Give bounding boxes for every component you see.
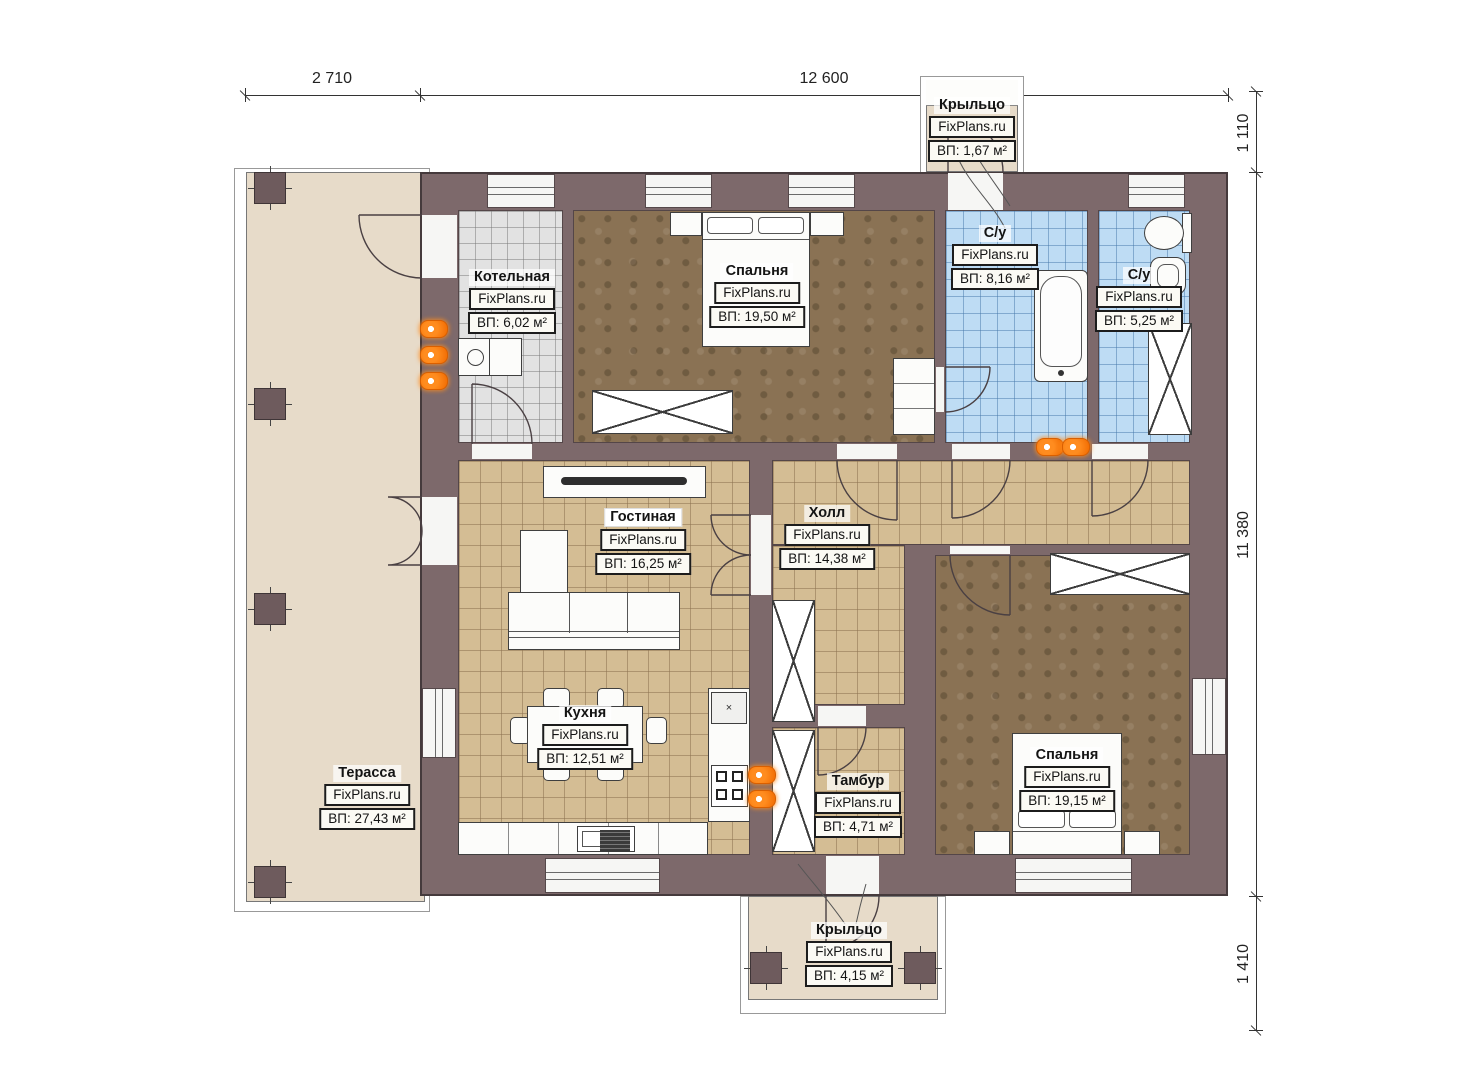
- area-box: ВП: 27,43 м²: [319, 808, 415, 830]
- terrace-column: [248, 166, 292, 210]
- nightstand: [810, 212, 844, 236]
- watermark-box: FixPlans.ru: [1096, 286, 1182, 308]
- burner: [716, 789, 727, 800]
- stove: [711, 765, 748, 807]
- drawer-line: [894, 383, 934, 384]
- toilet: [1144, 216, 1184, 250]
- watermark-box: FixPlans.ru: [952, 244, 1038, 266]
- watermark-box: FixPlans.ru: [469, 288, 555, 310]
- dim-top-house: 12 600: [744, 70, 904, 88]
- burner: [732, 771, 743, 782]
- door-opening-boiler: [472, 444, 532, 459]
- door-opening-terrace-living: [422, 497, 457, 565]
- window: [1128, 174, 1185, 208]
- room-label-porch-bottom: Крыльцо FixPlans.ru ВП: 4,15 м²: [805, 921, 893, 987]
- porch-column: [744, 946, 788, 990]
- area-box: ВП: 14,38 м²: [779, 548, 875, 570]
- door-opening-bath1: [952, 444, 1010, 459]
- window: [1015, 858, 1132, 893]
- door-opening-bedroom1: [837, 444, 897, 459]
- wardrobe: [772, 730, 815, 852]
- sofa-cushion-line: [569, 593, 570, 633]
- radiator-icon: [748, 790, 776, 808]
- room-name: Гостиная: [604, 508, 682, 527]
- radiator-icon: [1036, 438, 1064, 456]
- watermark-box: FixPlans.ru: [929, 116, 1015, 138]
- cabinet: [1148, 323, 1192, 435]
- area-box: ВП: 5,25 м²: [1095, 310, 1183, 332]
- bathtub-inner: [1040, 276, 1082, 367]
- area-box: ВП: 8,16 м²: [951, 268, 1039, 290]
- area-box: ВП: 6,02 м²: [468, 312, 556, 334]
- sink-unit: ×: [711, 692, 747, 724]
- room-name: Крыльцо: [934, 97, 1010, 114]
- room-name: Терасса: [333, 765, 401, 782]
- sofa-back-line: [509, 631, 679, 632]
- dim-top-terrace: 2 710: [272, 70, 392, 88]
- burner: [732, 789, 743, 800]
- dim-right-house: 11 380: [1235, 485, 1253, 585]
- bathtub: [1034, 270, 1088, 382]
- room-label-boiler: Котельная FixPlans.ru ВП: 6,02 м²: [468, 268, 556, 334]
- nightstand: [670, 212, 702, 236]
- room-label-terrace: Терасса FixPlans.ru ВП: 27,43 м²: [319, 764, 415, 830]
- pillow: [707, 217, 753, 234]
- watermark-box: FixPlans.ru: [815, 792, 901, 814]
- room-name: С/у: [979, 225, 1012, 242]
- room-label-bath1: С/у FixPlans.ru ВП: 8,16 м²: [951, 224, 1039, 290]
- chair: [646, 717, 667, 744]
- room-label-bath2: С/у FixPlans.ru ВП: 5,25 м²: [1095, 266, 1183, 332]
- watermark-box: FixPlans.ru: [806, 941, 892, 963]
- wardrobe: [1050, 553, 1190, 595]
- door-opening-terrace-boiler: [422, 215, 457, 278]
- pillow: [1018, 810, 1065, 828]
- nightstand: [974, 831, 1010, 855]
- door-opening-vestibule: [818, 706, 866, 726]
- door-opening-living-hall: [751, 515, 771, 595]
- pillow: [758, 217, 804, 234]
- area-box: ВП: 16,25 м²: [595, 553, 691, 575]
- window: [788, 174, 855, 208]
- dim-line-right: [1256, 91, 1257, 1030]
- sofa-back-line: [509, 637, 679, 638]
- floor-plan: 2 710 12 600 1 110 11 380 1 410: [0, 0, 1473, 1080]
- area-box: ВП: 12,51 м²: [537, 748, 633, 770]
- room-name: Холл: [804, 505, 850, 522]
- nightstand: [1124, 831, 1160, 855]
- door-opening-bedroom2: [950, 546, 1010, 554]
- area-box: ВП: 19,50 м²: [709, 306, 805, 328]
- appliance: [600, 830, 630, 852]
- window: [422, 688, 456, 758]
- radiator-icon: [420, 320, 448, 338]
- room-name: Кухня: [559, 705, 611, 722]
- terrace-column: [248, 860, 292, 904]
- watermark-box: FixPlans.ru: [784, 524, 870, 546]
- room-label-vestibule: Тамбур FixPlans.ru ВП: 4,71 м²: [814, 772, 902, 838]
- sofa-cushion-line: [627, 593, 628, 633]
- watermark-box: FixPlans.ru: [714, 282, 800, 304]
- tv: [561, 477, 687, 485]
- dim-right-porch-top: 1 110: [1235, 83, 1253, 183]
- door-opening-bedroom1-bath1: [936, 367, 944, 412]
- dim-line-top: [245, 95, 1228, 96]
- bathtub-drain: [1058, 370, 1064, 376]
- radiator-icon: [748, 766, 776, 784]
- room-name: Тамбур: [827, 773, 890, 790]
- radiator-icon: [420, 346, 448, 364]
- burner: [716, 771, 727, 782]
- room-name: Котельная: [469, 269, 555, 286]
- porch-column: [898, 946, 942, 990]
- watermark-box: FixPlans.ru: [1024, 766, 1110, 788]
- radiator-icon: [1062, 438, 1090, 456]
- watermark-box: FixPlans.ru: [600, 529, 686, 551]
- room-label-living: Гостиная FixPlans.ru ВП: 16,25 м²: [595, 508, 691, 575]
- boiler-dial: [467, 349, 484, 366]
- room-label-bedroom1: Спальня FixPlans.ru ВП: 19,50 м²: [709, 262, 805, 328]
- watermark-box: FixPlans.ru: [324, 784, 410, 806]
- pillow: [1069, 810, 1116, 828]
- room-name: Спальня: [721, 263, 794, 280]
- room-label-porch-top: Крыльцо FixPlans.ru ВП: 1,67 м²: [928, 96, 1016, 162]
- dim-right-porch-bottom: 1 410: [1235, 914, 1253, 1014]
- wardrobe: [772, 600, 815, 722]
- blanket-line: [703, 239, 809, 240]
- room-name: Крыльцо: [811, 922, 887, 939]
- dresser: [893, 358, 935, 435]
- area-box: ВП: 19,15 м²: [1019, 790, 1115, 812]
- sofa-chaise: [520, 530, 568, 594]
- terrace-column: [248, 382, 292, 426]
- door-opening-entrance-bottom: [826, 856, 879, 894]
- room-label-bedroom2: Спальня FixPlans.ru ВП: 19,15 м²: [1019, 746, 1115, 812]
- door-opening-bath2: [1092, 444, 1148, 459]
- window: [487, 174, 555, 208]
- boiler-unit: [458, 338, 522, 376]
- drawer-line: [894, 408, 934, 409]
- watermark-box: FixPlans.ru: [542, 724, 628, 746]
- area-box: ВП: 4,71 м²: [814, 816, 902, 838]
- area-box: ВП: 1,67 м²: [928, 140, 1016, 162]
- area-box: ВП: 4,15 м²: [805, 965, 893, 987]
- wardrobe: [592, 390, 733, 434]
- door-opening-entrance-top: [948, 173, 1003, 210]
- terrace-column: [248, 587, 292, 631]
- sofa: [508, 592, 680, 650]
- room-label-kitchen: Кухня FixPlans.ru ВП: 12,51 м²: [537, 704, 633, 770]
- window: [545, 858, 660, 893]
- room-name: С/у: [1123, 267, 1156, 284]
- window: [1192, 678, 1226, 755]
- radiator-icon: [420, 372, 448, 390]
- boiler-divider: [489, 339, 490, 375]
- window: [645, 174, 712, 208]
- room-name: Спальня: [1031, 747, 1104, 764]
- headboard-line: [1013, 831, 1121, 832]
- room-label-hall: Холл FixPlans.ru ВП: 14,38 м²: [779, 504, 875, 570]
